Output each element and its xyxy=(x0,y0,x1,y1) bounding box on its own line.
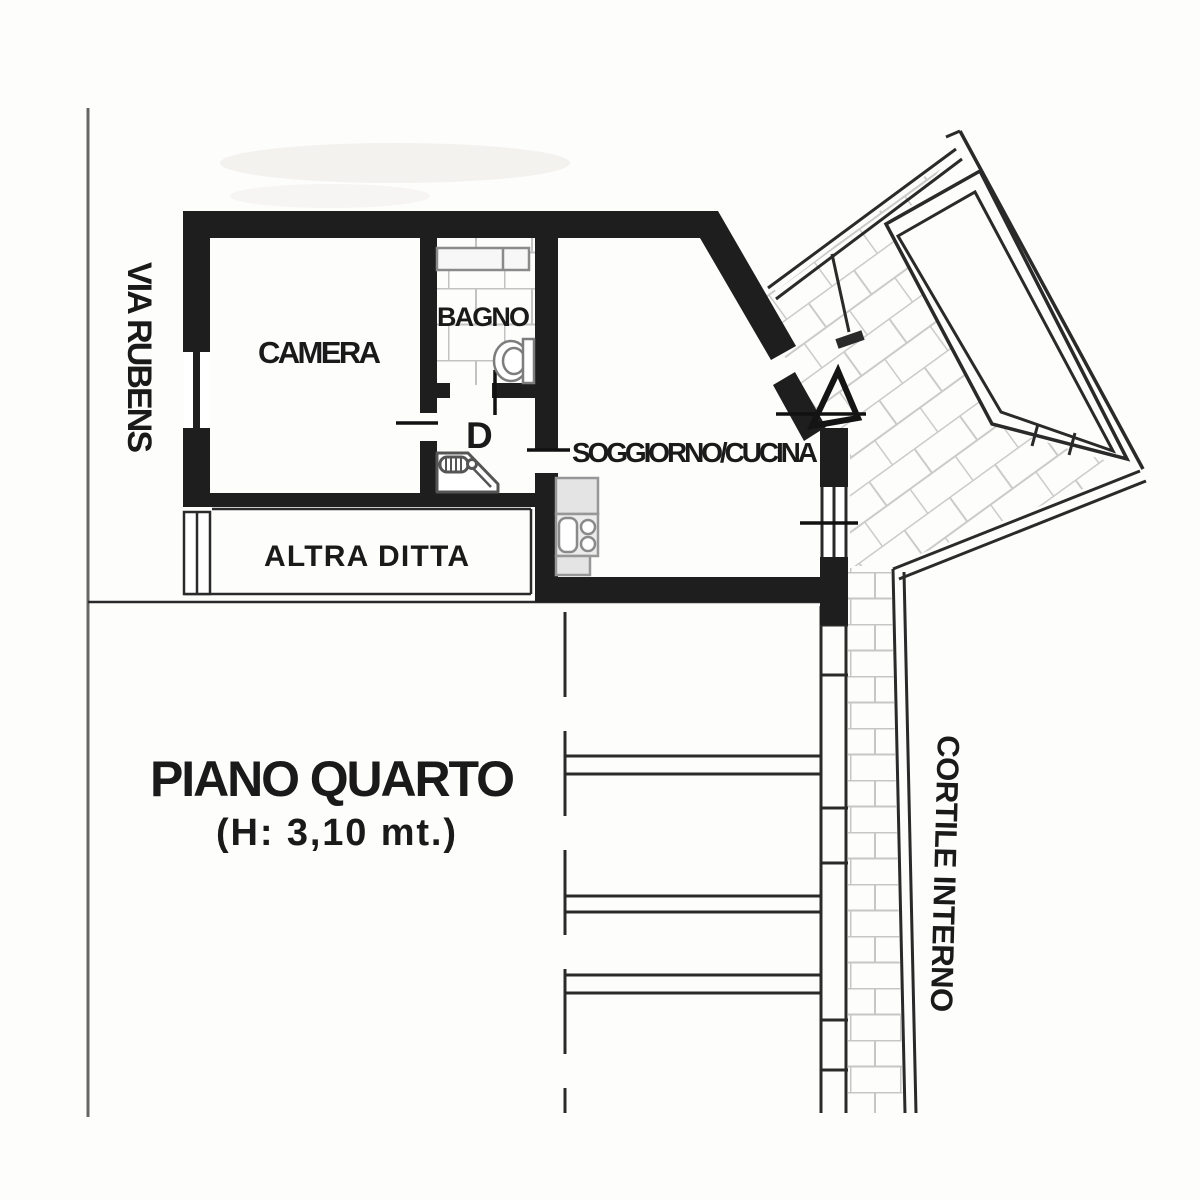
courtyard-label: CORTILE INTERNO xyxy=(924,735,966,1014)
adjacent-unit-lower xyxy=(88,602,848,1113)
floor-title: PIANO QUARTO xyxy=(150,751,516,807)
toilet-icon xyxy=(494,339,534,383)
floor-plan-drawing: CAMERA BAGNO D SOGGIORNO/CUCINA ALTRA DI… xyxy=(0,0,1200,1200)
title-block: PIANO QUARTO (H: 3,10 mt.) xyxy=(150,751,516,854)
window-symbol-camera xyxy=(184,352,210,428)
room-label-camera: CAMERA xyxy=(258,335,382,370)
kitchen-unit-icon xyxy=(556,478,598,575)
street-label: VIA RUBENS xyxy=(120,262,158,454)
water-heater-icon xyxy=(437,453,498,492)
scan-smudge xyxy=(220,143,570,208)
floor-plan-page: CAMERA BAGNO D SOGGIORNO/CUCINA ALTRA DI… xyxy=(0,0,1200,1200)
room-label-altra-ditta: ALTRA DITTA xyxy=(264,540,470,573)
sink-counter-icon xyxy=(437,248,529,270)
window-symbol-altra-ditta xyxy=(184,512,210,594)
room-label-disimpegno: D xyxy=(466,415,493,456)
room-label-bagno: BAGNO xyxy=(437,302,530,332)
floor-height-note: (H: 3,10 mt.) xyxy=(216,812,456,854)
room-label-soggiorno-cucina: SOGGIORNO/CUCINA xyxy=(572,437,818,468)
